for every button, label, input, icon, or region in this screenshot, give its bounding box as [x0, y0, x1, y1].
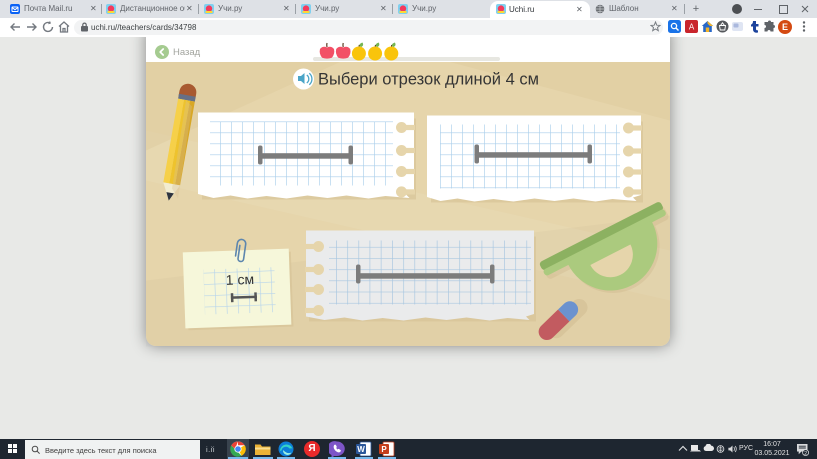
- svg-text:W: W: [357, 445, 365, 454]
- svg-text:P: P: [381, 445, 387, 454]
- svg-text:A: A: [689, 23, 695, 32]
- svg-text:1 см: 1 см: [225, 270, 254, 287]
- svg-text:Выбери отрезок длиной 4 см: Выбери отрезок длиной 4 см: [318, 70, 539, 88]
- svg-text:2: 2: [804, 450, 807, 455]
